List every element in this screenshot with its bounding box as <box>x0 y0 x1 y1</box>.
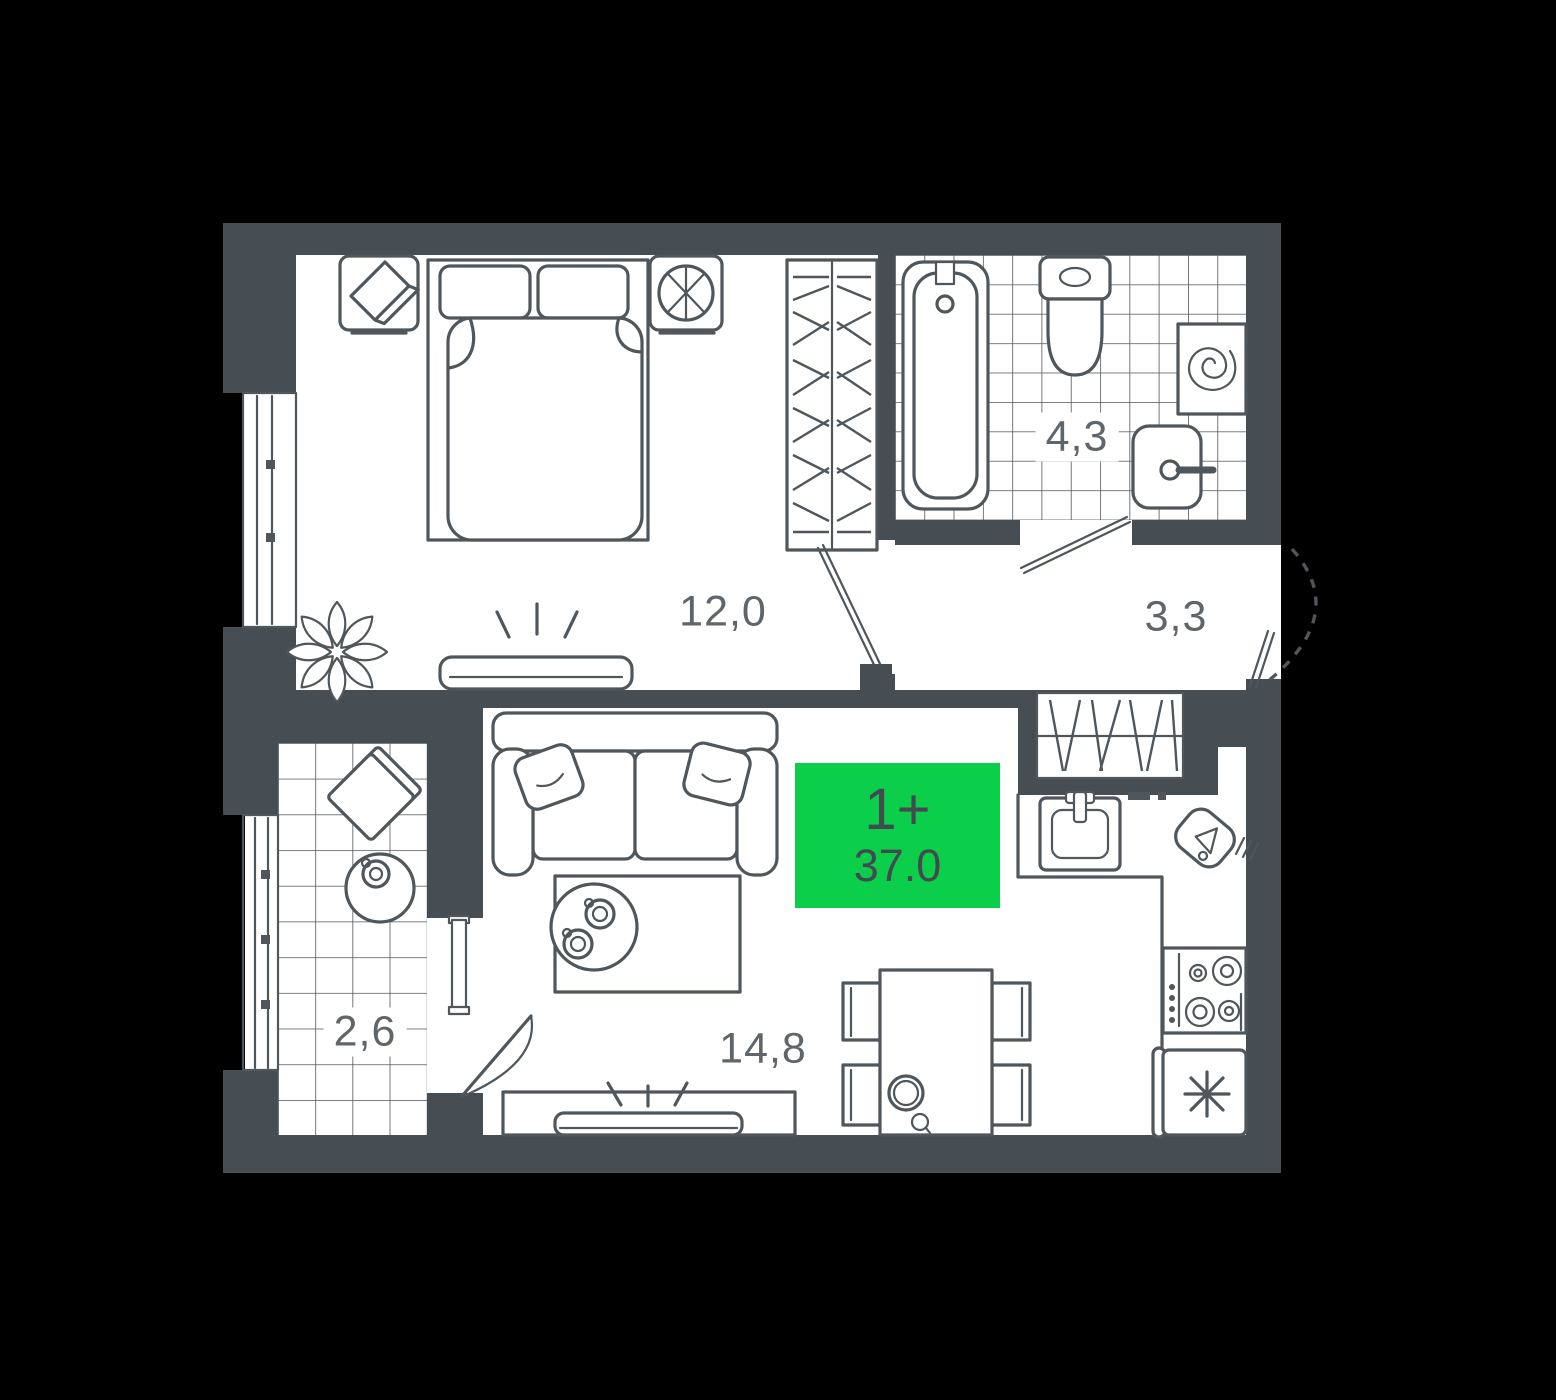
passage-wall <box>1218 690 1246 747</box>
bedroom-window-glass <box>223 393 243 627</box>
tv-stand <box>503 1083 795 1135</box>
bathroom-sink <box>1133 426 1213 508</box>
entry-door-opening <box>1246 545 1281 679</box>
washing-machine <box>1178 324 1246 414</box>
bedroom-window-sill <box>243 393 296 627</box>
area-label-balcony: 2,6 <box>324 1008 407 1057</box>
stove <box>1163 948 1246 1033</box>
floor-plan: 12,0 4,3 3,3 2,6 14,8 1+ 37.0 <box>0 0 1556 1400</box>
rooms-count-label: 1+ <box>864 780 930 841</box>
ball-icon <box>659 266 713 320</box>
bed <box>428 260 648 540</box>
fridge <box>1153 1048 1246 1137</box>
nightstand-left <box>340 256 418 333</box>
tv <box>555 1113 742 1135</box>
cup-icon <box>564 930 592 958</box>
blanket <box>448 318 642 540</box>
pillow <box>538 266 628 318</box>
total-area-label: 37.0 <box>854 841 942 891</box>
area-label-bedroom: 12,0 <box>679 591 767 634</box>
chair <box>992 983 1030 1040</box>
chair <box>843 983 880 1040</box>
pillow <box>440 266 530 318</box>
sofa <box>493 713 777 875</box>
area-label-living-kitchen: 14,8 <box>719 1028 807 1071</box>
toilet <box>1040 257 1110 375</box>
nightstand-right <box>650 256 722 333</box>
balcony-window-sill <box>243 815 278 1070</box>
floor-plan-drawing <box>0 0 1556 1400</box>
wardrobe-bedroom <box>787 260 877 550</box>
area-label-hallway: 3,3 <box>1145 596 1208 639</box>
chair <box>992 1065 1030 1125</box>
chair <box>843 1065 880 1125</box>
snowflake-icon <box>1185 1072 1229 1116</box>
cup-icon <box>363 861 389 887</box>
coffee-table <box>551 884 637 970</box>
area-label-bathroom: 4,3 <box>1036 413 1119 462</box>
cup-icon <box>586 900 614 928</box>
dining-table <box>880 970 992 1135</box>
balcony-table <box>346 854 414 922</box>
plan-badge: 1+ 37.0 <box>795 763 1000 908</box>
bedroom-door-opening <box>878 540 895 674</box>
balcony-window-glass <box>223 815 245 1070</box>
bathtub <box>903 262 988 509</box>
